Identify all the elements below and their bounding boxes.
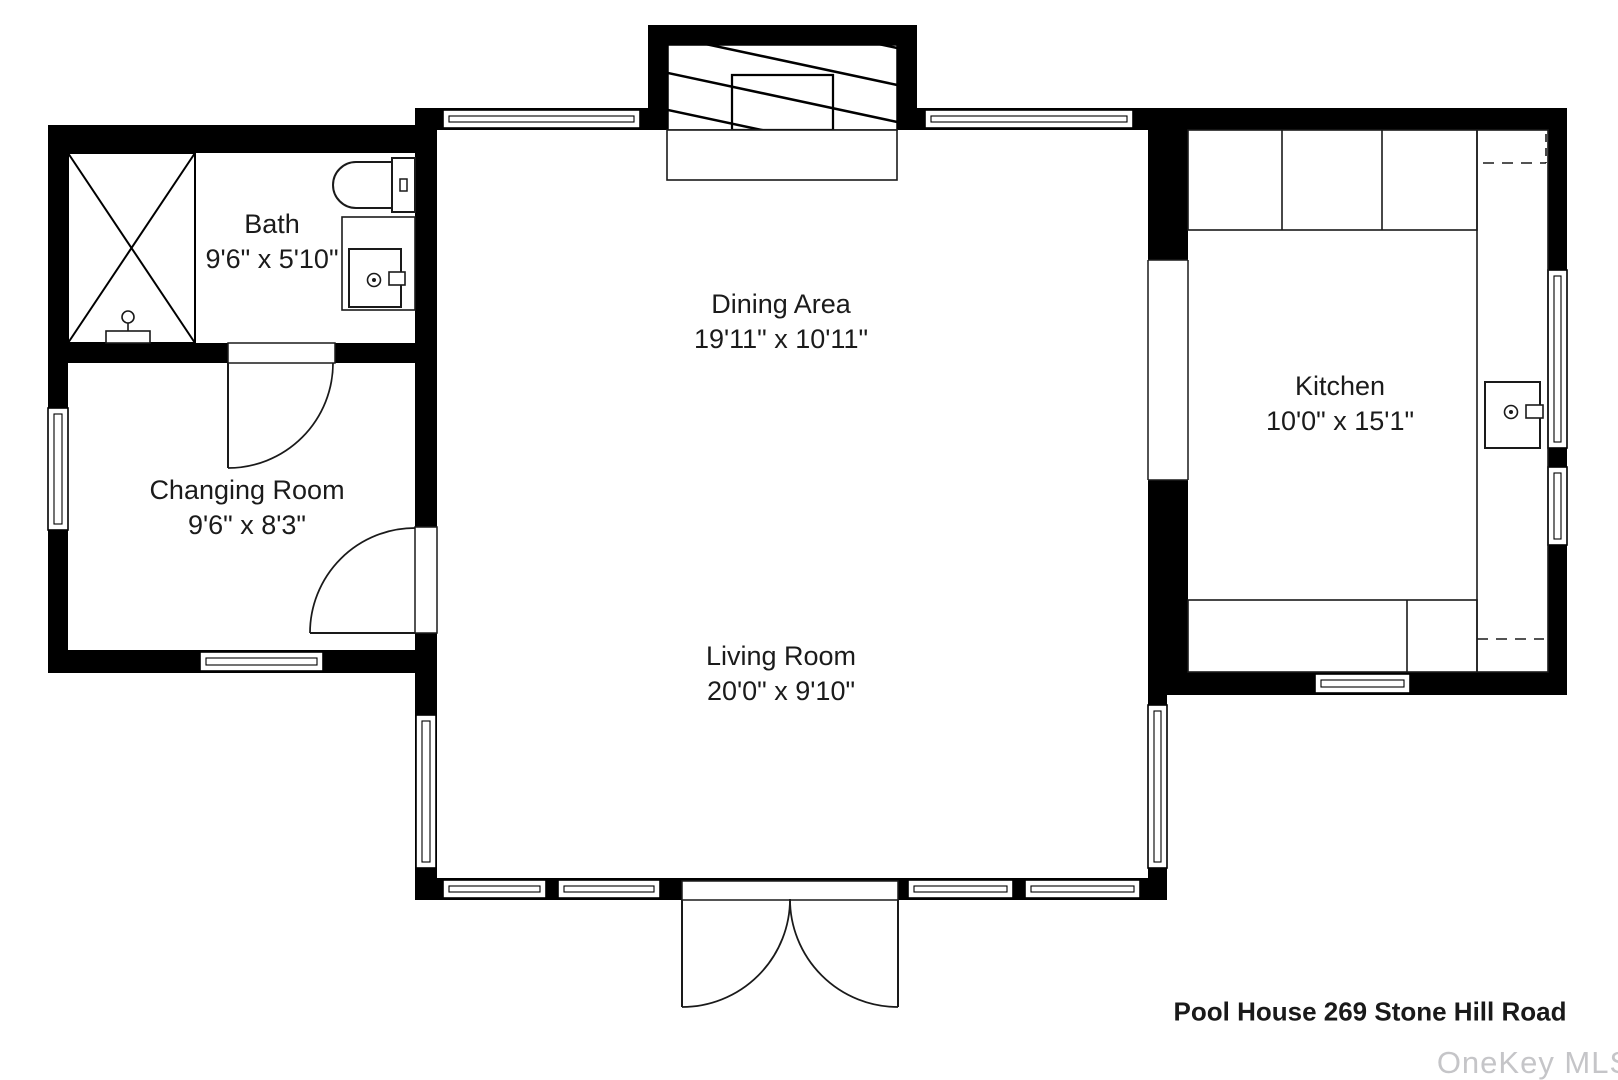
plan-title: Pool House 269 Stone Hill Road [1174,997,1567,1028]
hearth [667,130,897,180]
bath-door [228,343,335,468]
room-label-changing-room: Changing Room 9'6" x 8'3" [149,473,344,543]
vanity-sink [342,217,415,310]
room-label-bath: Bath 9'6" x 5'10" [205,207,338,277]
double-entry-door [682,881,898,1007]
toilet [333,158,415,212]
room-dimensions: 10'0" x 15'1" [1266,404,1414,439]
room-dimensions: 9'6" x 5'10" [205,242,338,277]
room-dimensions: 20'0" x 9'10" [706,674,856,709]
floor-plan-page: Bath 9'6" x 5'10" Changing Room 9'6" x 8… [0,0,1618,1080]
room-name: Dining Area [694,287,868,322]
room-label-dining-area: Dining Area 19'11" x 10'11" [694,287,868,357]
room-dimensions: 19'11" x 10'11" [694,322,868,357]
room-label-kitchen: Kitchen 10'0" x 15'1" [1266,369,1414,439]
kitchen-upper-counter [1188,130,1477,230]
room-name: Living Room [706,639,856,674]
kitchen-sink [1485,382,1543,448]
kitchen-lower-counter [1188,600,1477,672]
room-label-living-room: Living Room 20'0" x 9'10" [706,639,856,709]
kitchen-passage [1148,260,1188,480]
room-name: Changing Room [149,473,344,508]
room-dimensions: 9'6" x 8'3" [149,508,344,543]
room-name: Kitchen [1266,369,1414,404]
room-name: Bath [205,207,338,242]
onekey-mls-watermark: OneKey MLS [1437,1045,1618,1080]
